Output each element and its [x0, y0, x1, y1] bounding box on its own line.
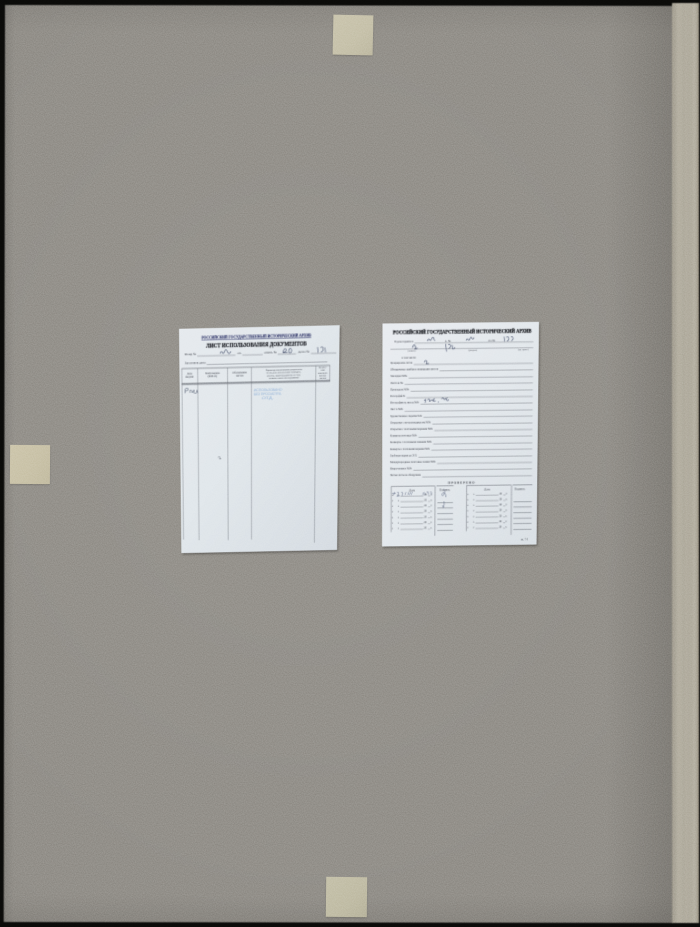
- svg-text:(раздел): (раздел): [469, 349, 478, 352]
- svg-text:Гербовые марки до Х/Х: Гербовые марки до Х/Х: [390, 453, 417, 457]
- svg-text:В деле подшито и: В деле подшито и: [394, 339, 413, 343]
- svg-text:опись №: опись №: [264, 350, 277, 354]
- svg-text:листов: листов: [320, 377, 327, 380]
- svg-text:Непрочтенное №№: Непрочтенное №№: [390, 466, 412, 470]
- svg-text:л. №: л. №: [445, 339, 451, 343]
- svg-text:Международные почтовые знаки №: Международные почтовые знаки №№: [390, 460, 436, 464]
- svg-text:Конверты с почтовыми знаками №: Конверты с почтовыми знаками №№: [390, 440, 432, 444]
- svg-text:Дата: Дата: [409, 488, 416, 492]
- svg-text:дело №: дело №: [298, 350, 310, 354]
- svg-text:Чистые листы не обнаружены: Чистые листы не обнаружены: [390, 473, 421, 477]
- svg-text:Фотографий №: Фотографий №: [390, 394, 405, 398]
- svg-text:Открытки с почтовыми марками №: Открытки с почтовыми марками №№: [390, 427, 433, 431]
- svg-text:Листов №: Листов №: [390, 381, 403, 385]
- svg-text:Лист в №№: Лист в №№: [390, 407, 403, 411]
- svg-text:Подпись: Подпись: [439, 488, 450, 492]
- svg-text:Художественные открытки №№: Художественные открытки №№: [390, 414, 422, 418]
- svg-text:Конверты почтовые №№: Конверты почтовые №№: [390, 433, 417, 437]
- svg-text:Фонд №: Фонд №: [185, 352, 197, 356]
- svg-text:Пронумеровано листов: Пронумеровано листов: [390, 361, 412, 365]
- svg-text:Фотографии на листах №№: Фотографии на листах №№: [390, 400, 419, 404]
- svg-text:в том числе:: в том числе:: [402, 355, 417, 359]
- svg-text:Заголовок дела: Заголовок дела: [185, 360, 206, 364]
- svg-text:(опись): (опись): [408, 349, 416, 352]
- svg-text:оп.: оп.: [237, 351, 241, 355]
- svg-text:(Ф.И.О.): (Ф.И.О.): [208, 375, 217, 378]
- svg-text:Конверты с почтовыми марками №: Конверты с почтовыми марками №№: [390, 447, 430, 451]
- svg-text:П Р О В Е Р Е Н О: П Р О В Е Р Е Н О: [448, 481, 475, 485]
- svg-text:Открытки с металлокаркасом №№: Открытки с металлокаркасом №№: [390, 420, 431, 424]
- svg-text:выдачи: выдачи: [186, 376, 195, 379]
- svg-text:зк. 7 б: зк. 7 б: [521, 538, 529, 541]
- svg-text:Закладка №№: Закладка №№: [390, 374, 407, 378]
- svg-text:Дата: Дата: [484, 487, 491, 491]
- svg-text:Подпись: Подпись: [514, 487, 525, 491]
- svg-text:Обнаружены ошибки в нумерации: Обнаружены ошибки в нумерации листов: [390, 367, 438, 372]
- svg-text:(ед. хран.): (ед. хран.): [518, 348, 529, 351]
- svg-text:по №: по №: [489, 338, 496, 342]
- svg-text:листов: листов: [236, 375, 244, 378]
- svg-text:ОТД.: ОТД.: [262, 396, 274, 400]
- svg-text:Прокладок №№: Прокладок №№: [390, 387, 409, 391]
